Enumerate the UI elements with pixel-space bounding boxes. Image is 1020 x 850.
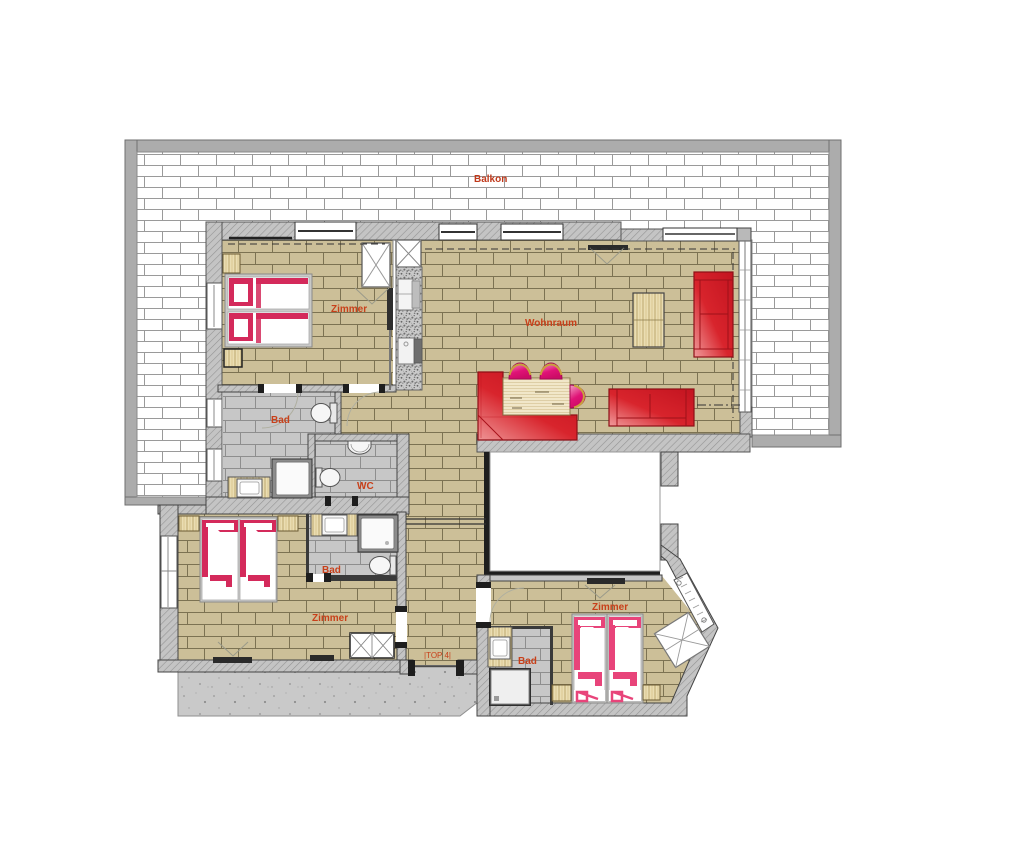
svg-text:Bad: Bad <box>518 656 537 667</box>
svg-text:Wohnraum: Wohnraum <box>525 318 577 329</box>
svg-text:Zimmer: Zimmer <box>331 304 367 315</box>
svg-text:Zimmer: Zimmer <box>312 613 348 624</box>
svg-text:|TOP 4|: |TOP 4| <box>424 651 451 660</box>
svg-text:Balkon: Balkon <box>474 174 507 185</box>
svg-text:Bad: Bad <box>271 415 290 426</box>
svg-text:WC: WC <box>357 481 374 492</box>
svg-text:Bad: Bad <box>322 565 341 576</box>
svg-text:Zimmer: Zimmer <box>592 602 628 613</box>
